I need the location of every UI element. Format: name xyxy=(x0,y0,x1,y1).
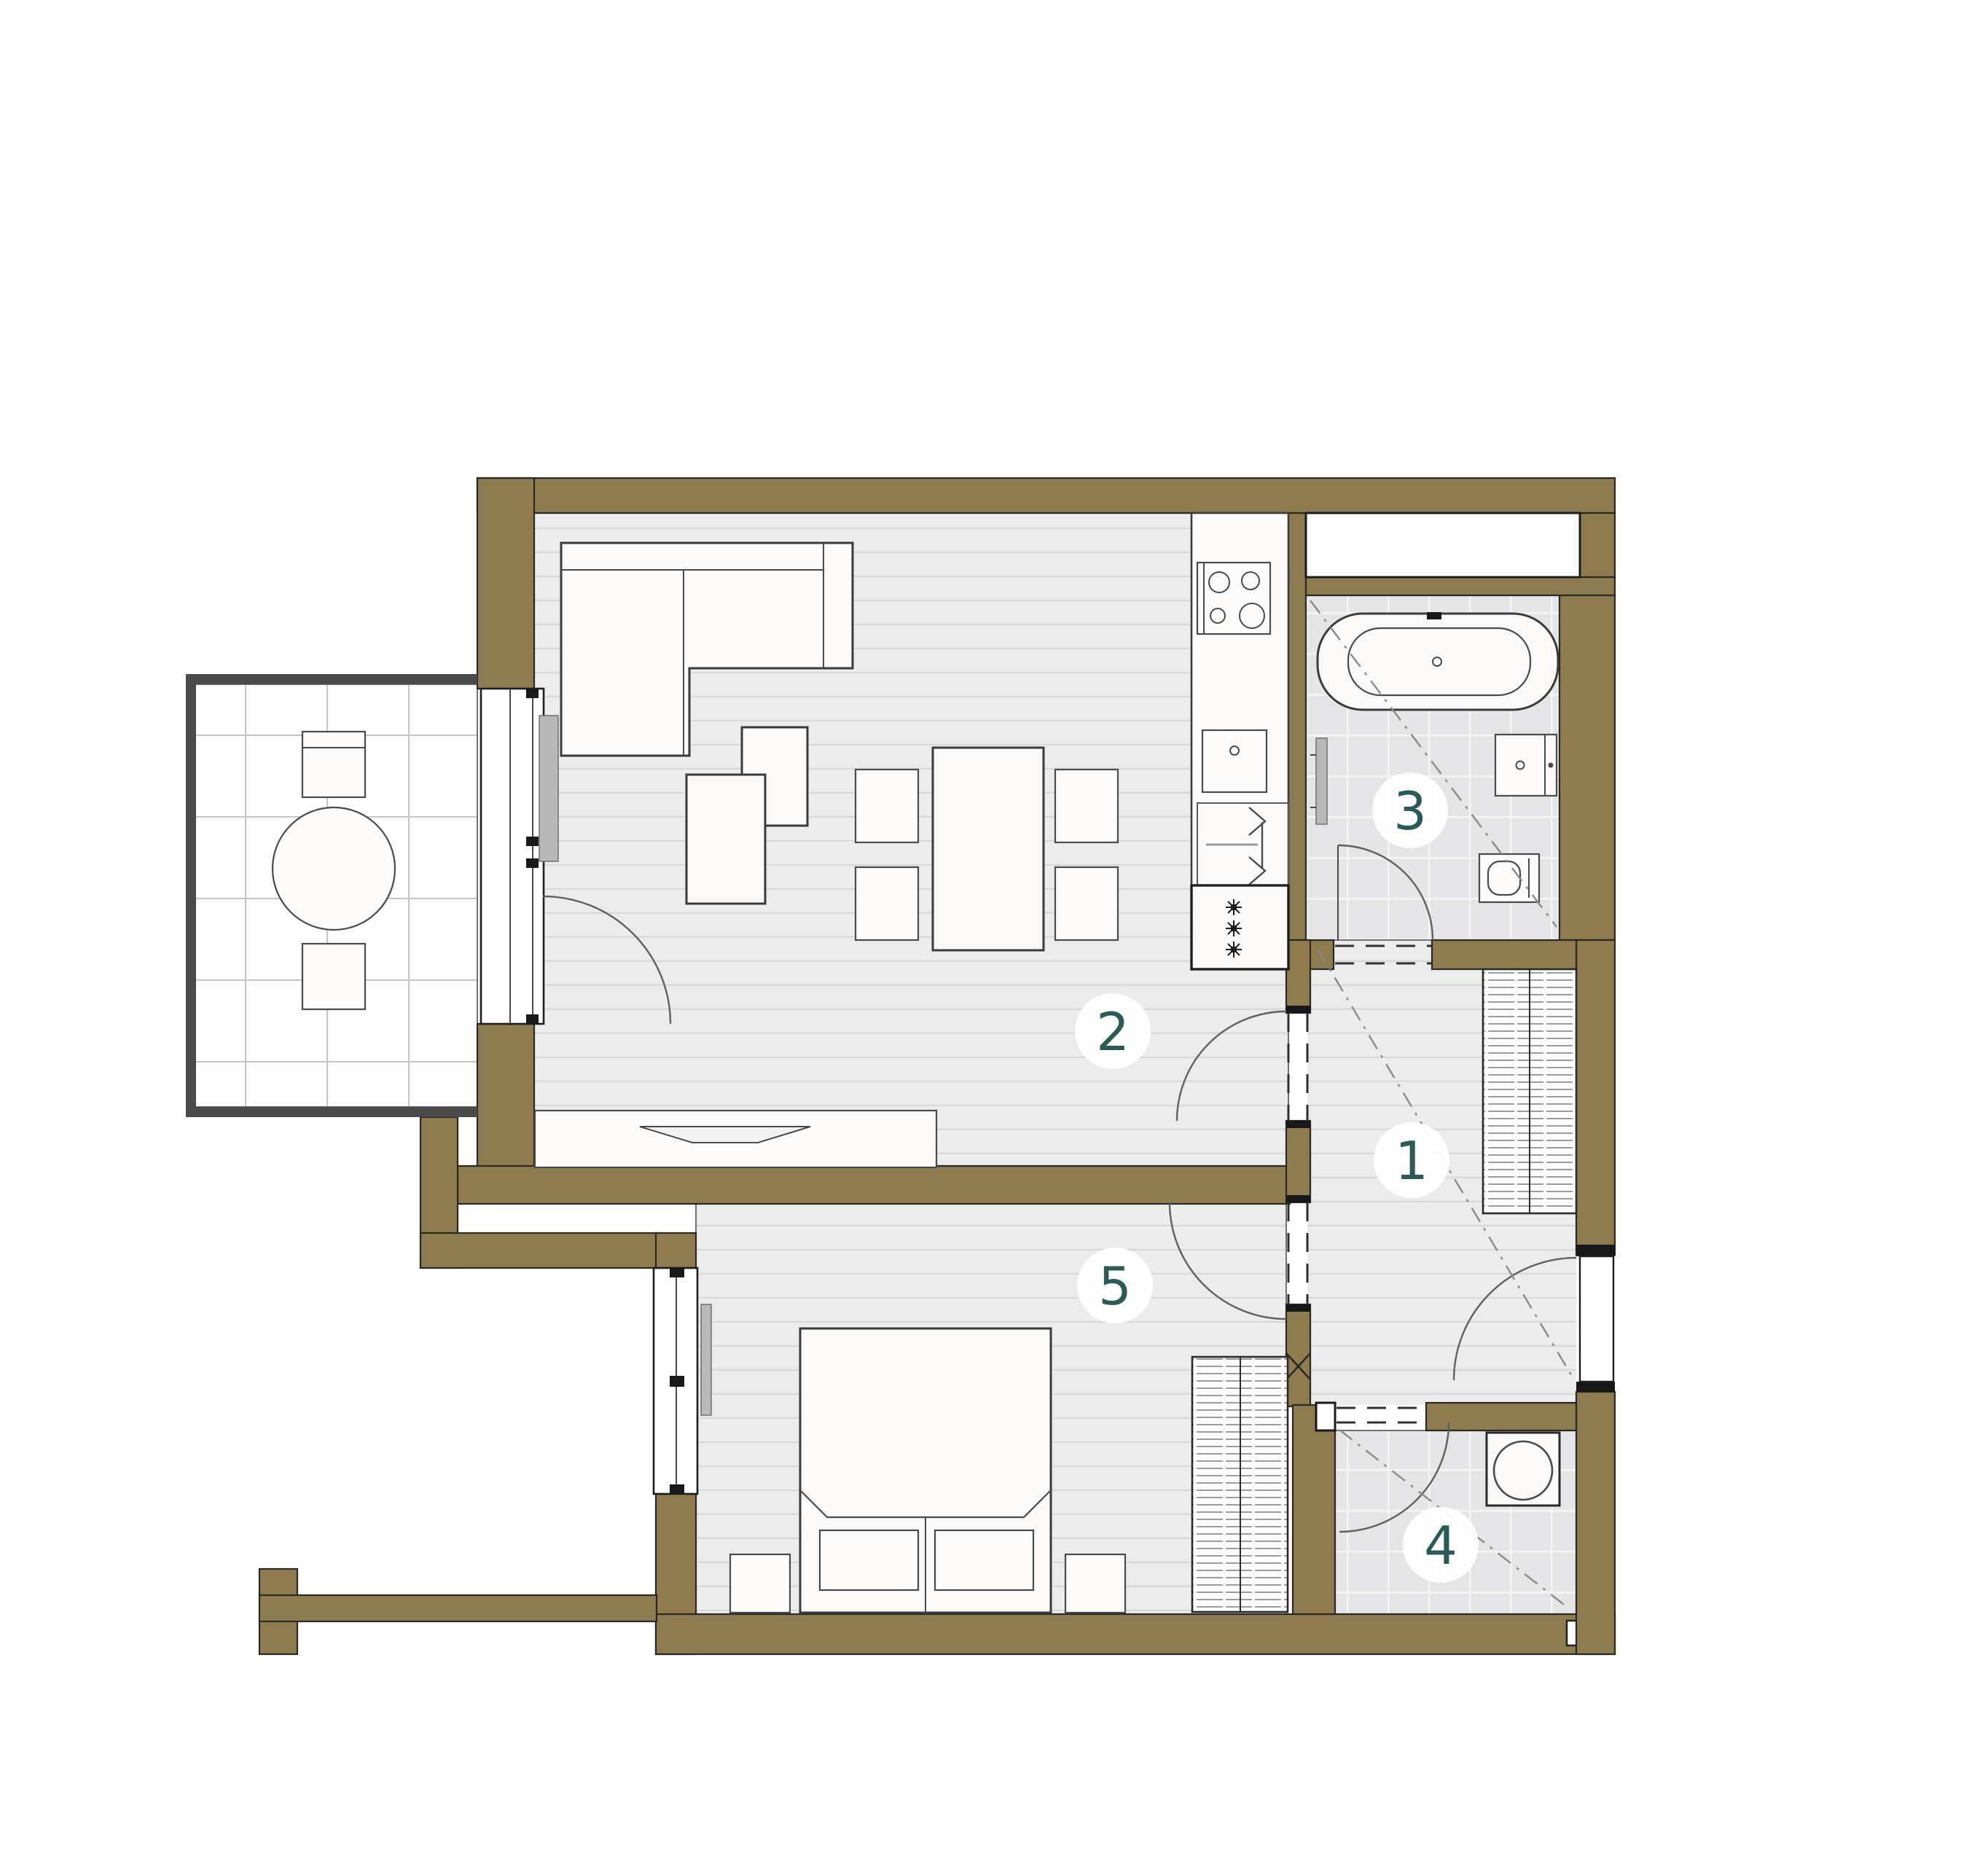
dining-chair-4 xyxy=(1055,867,1118,940)
balcony-chair-2 xyxy=(302,944,365,1009)
nightstand-left xyxy=(730,1554,790,1613)
balcony-table xyxy=(273,807,395,930)
wall-kitchen-bath xyxy=(1288,513,1306,940)
wall-right-bathroom xyxy=(1560,595,1615,940)
wall-living-bedroom xyxy=(458,1166,1290,1204)
dining-chair-2 xyxy=(856,867,918,940)
room-number-1: 1 xyxy=(1395,1130,1428,1191)
toilet xyxy=(1479,854,1539,902)
room-label-2: 2 xyxy=(1075,993,1151,1069)
dining-chair-1 xyxy=(856,770,918,842)
floor-plan-drawing: 1 2 3 4 5 xyxy=(0,0,1988,1871)
balcony-railing-left xyxy=(186,674,196,1117)
wardrobe-hall xyxy=(1483,969,1576,1213)
room-label-1: 1 xyxy=(1374,1122,1449,1198)
shaft xyxy=(1306,513,1580,577)
kitchen-sink xyxy=(1202,730,1267,792)
wall-stub-b xyxy=(1286,1121,1310,1202)
wall-step-horizontal xyxy=(420,1233,660,1268)
wall-stub-left-horizontal xyxy=(259,1595,657,1621)
wall-stub-a xyxy=(1286,940,1310,1013)
bedroom-radiator xyxy=(701,1304,711,1415)
balcony-railing-bottom xyxy=(186,1107,477,1117)
wall-utility-left xyxy=(1293,1405,1335,1614)
lounge-chair-2 xyxy=(686,775,765,904)
balcony-railing-top xyxy=(186,674,477,684)
dining-chair-3 xyxy=(1055,770,1118,842)
room-number-4: 4 xyxy=(1424,1515,1457,1576)
room-label-3: 3 xyxy=(1372,772,1448,848)
balcony-door xyxy=(481,689,544,1024)
wall-stub-c xyxy=(1286,1304,1310,1406)
vanity-sink xyxy=(1495,735,1557,796)
wall-right-hall-upper xyxy=(1576,940,1615,1255)
wall-utility-door-jamb xyxy=(1316,1403,1335,1430)
wall-right-of-shaft xyxy=(1580,513,1615,577)
wall-below-shaft xyxy=(1304,577,1615,595)
room-number-5: 5 xyxy=(1098,1256,1132,1317)
room-label-4: 4 xyxy=(1403,1507,1479,1583)
room-number-3: 3 xyxy=(1393,780,1427,842)
wall-left-lower xyxy=(477,1024,534,1170)
pillow-right xyxy=(935,1530,1033,1590)
wall-bath-bottom xyxy=(1432,940,1576,969)
wall-bedroom-left-top xyxy=(656,1233,696,1268)
window-radiator xyxy=(539,716,558,861)
wall-bottom xyxy=(656,1614,1615,1654)
fridge-freezer xyxy=(1191,885,1288,969)
floor-plan-page: 1 2 3 4 5 xyxy=(0,0,1988,1871)
wall-left-upper xyxy=(477,478,534,689)
nightstand-right xyxy=(1065,1554,1125,1613)
entrance-door-leaf xyxy=(1580,1256,1613,1382)
wall-right-hall-lower xyxy=(1576,1392,1615,1654)
cooktop xyxy=(1197,563,1270,634)
wardrobe-bedroom xyxy=(1192,1357,1288,1612)
washing-machine xyxy=(1487,1433,1560,1506)
wall-top xyxy=(477,478,1615,513)
towel-radiator xyxy=(1316,738,1327,824)
room-label-5: 5 xyxy=(1077,1248,1153,1323)
pillow-left xyxy=(820,1530,918,1590)
balcony-chair-1 xyxy=(302,732,365,797)
room-number-2: 2 xyxy=(1096,1001,1130,1062)
kitchen xyxy=(1191,513,1288,969)
bathtub-faucet xyxy=(1427,612,1441,619)
dining-table xyxy=(933,748,1044,950)
